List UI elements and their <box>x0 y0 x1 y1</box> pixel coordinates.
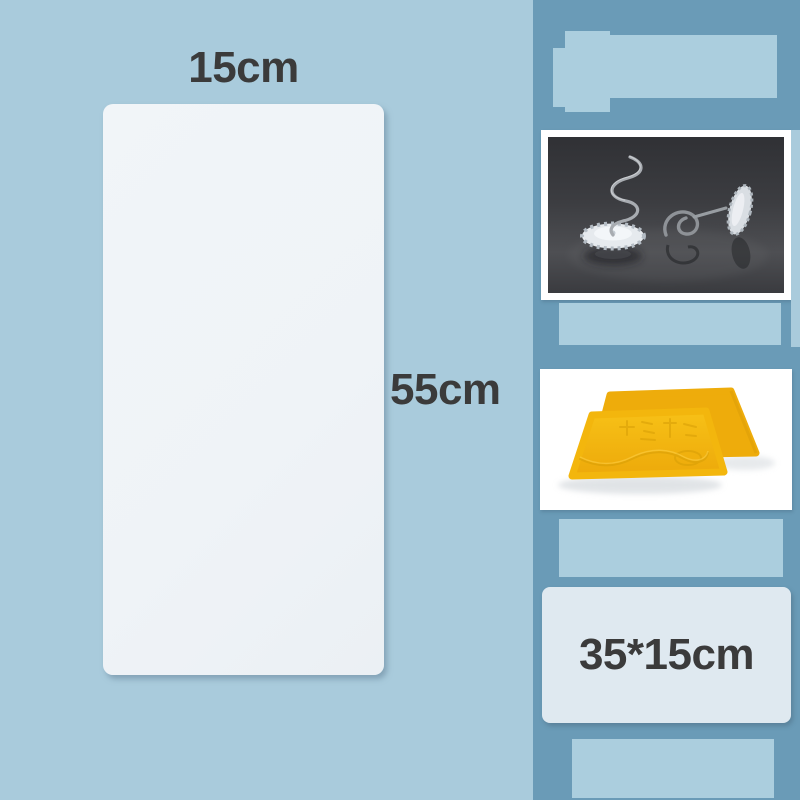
scraper-size-label: 35*15cm <box>579 630 754 680</box>
background-edge-strip <box>791 130 800 347</box>
placeholder-bar-3 <box>572 739 774 798</box>
width-dimension-label: 15cm <box>103 38 384 98</box>
sidebar: 35*15cm <box>533 0 800 800</box>
product-dimension-image: 15cm 55cm <box>0 0 800 800</box>
cropped-thumbnail-shape <box>553 31 777 112</box>
twist-pins-illustration <box>548 137 784 293</box>
placeholder-bar-1 <box>559 303 781 345</box>
yellow-scrapers-illustration <box>540 369 792 510</box>
twist-pins-photo-thumbnail <box>541 130 791 300</box>
height-dimension-label: 55cm <box>390 360 501 420</box>
yellow-scrapers-photo-thumbnail <box>540 369 792 510</box>
placeholder-bar-2 <box>559 519 783 577</box>
film-panel <box>103 104 384 675</box>
scraper-size-panel: 35*15cm <box>542 587 791 723</box>
